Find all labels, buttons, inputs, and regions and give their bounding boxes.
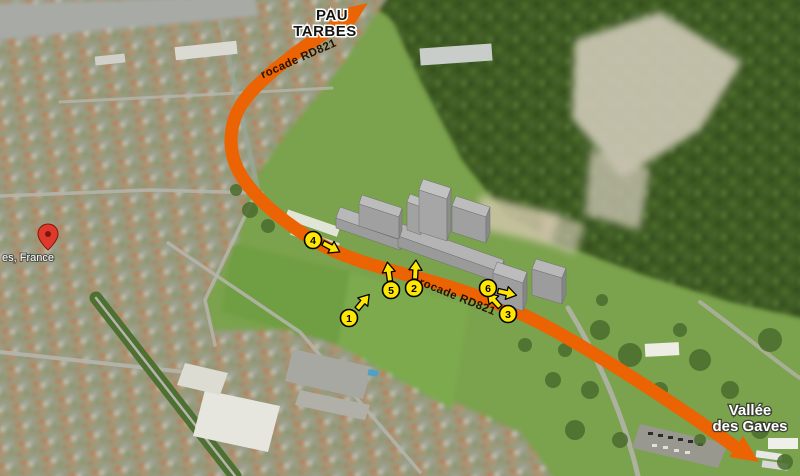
marker-3-label: 3 [505,309,511,321]
marker-6-label: 6 [485,283,491,295]
pin-dot-icon [45,231,51,237]
destination-southeast-line1: Vallée [729,402,772,419]
marker-1-label: 1 [346,313,352,325]
destination-southeast-line2: des Gaves [712,418,787,435]
place-label: es, France [2,252,54,264]
marker-4-label: 4 [310,235,316,247]
destination-north-line1: PAU [316,7,348,24]
map-canvas[interactable]: rocade RD821 rocade RD821 1 2 3 4 5 [0,0,800,476]
marker-5-label: 5 [388,285,394,297]
aerial-route-map: rocade RD821 rocade RD821 1 2 3 4 5 [0,0,800,476]
destination-north-line2: TARBES [293,23,357,40]
building-tower [419,179,451,241]
marker-2-label: 2 [411,283,417,295]
